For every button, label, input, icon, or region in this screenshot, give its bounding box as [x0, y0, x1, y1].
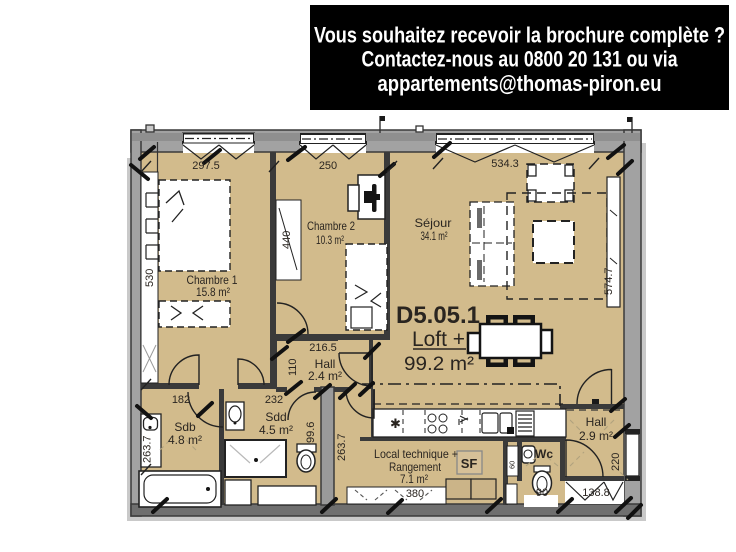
- svg-text:90: 90: [536, 487, 548, 499]
- svg-text:263.7: 263.7: [336, 433, 348, 461]
- svg-text:440: 440: [281, 231, 293, 249]
- svg-text:232: 232: [265, 394, 283, 406]
- svg-text:34.1 m²: 34.1 m²: [421, 229, 448, 243]
- svg-text:574.7: 574.7: [603, 267, 615, 295]
- svg-text:297.5: 297.5: [192, 160, 220, 172]
- svg-text:110: 110: [287, 358, 299, 376]
- svg-text:7.1 m²: 7.1 m²: [400, 472, 428, 486]
- svg-text:99.6: 99.6: [305, 422, 317, 443]
- svg-text:534.3: 534.3: [491, 158, 519, 170]
- svg-text:Contactez-nous au 0800 20 131: Contactez-nous au 0800 20 131 ou via: [362, 47, 679, 72]
- svg-text:15.8 m²: 15.8 m²: [196, 285, 230, 299]
- svg-text:SF: SF: [461, 456, 478, 471]
- svg-text:Sdd: Sdd: [265, 410, 286, 424]
- svg-text:Hall: Hall: [586, 415, 607, 429]
- svg-text:99.2 m²: 99.2 m²: [404, 354, 474, 375]
- svg-text:530: 530: [144, 269, 156, 287]
- svg-text:Wc: Wc: [535, 447, 553, 461]
- svg-text:263.7: 263.7: [142, 435, 154, 463]
- svg-text:✱: ✱: [390, 416, 401, 431]
- svg-text:10.3 m²: 10.3 m²: [316, 233, 344, 247]
- svg-text:Local technique +: Local technique +: [374, 447, 458, 461]
- svg-text:Sdb: Sdb: [174, 420, 196, 434]
- svg-text:Vous souhaitez recevoir la bro: Vous souhaitez recevoir la brochure comp…: [314, 23, 725, 48]
- svg-text:60: 60: [508, 461, 517, 469]
- svg-text:220: 220: [610, 453, 622, 471]
- svg-text:380: 380: [406, 488, 424, 500]
- svg-text:Séjour: Séjour: [415, 216, 452, 230]
- svg-text:4.5 m²: 4.5 m²: [259, 423, 293, 437]
- svg-text:appartements@thomas-piron.eu: appartements@thomas-piron.eu: [378, 71, 662, 96]
- svg-text:138.8: 138.8: [582, 487, 610, 499]
- svg-text:D5.05.1: D5.05.1: [396, 302, 480, 329]
- svg-text:2.9 m²: 2.9 m²: [579, 429, 613, 443]
- svg-text:182: 182: [172, 394, 190, 406]
- svg-text:4.8 m²: 4.8 m²: [168, 433, 202, 447]
- svg-text:Loft +: Loft +: [412, 328, 465, 351]
- svg-text:Chambre 2: Chambre 2: [307, 219, 355, 233]
- svg-text:216.5: 216.5: [309, 342, 337, 354]
- svg-text:250: 250: [319, 160, 337, 172]
- svg-text:2.4 m²: 2.4 m²: [308, 369, 342, 383]
